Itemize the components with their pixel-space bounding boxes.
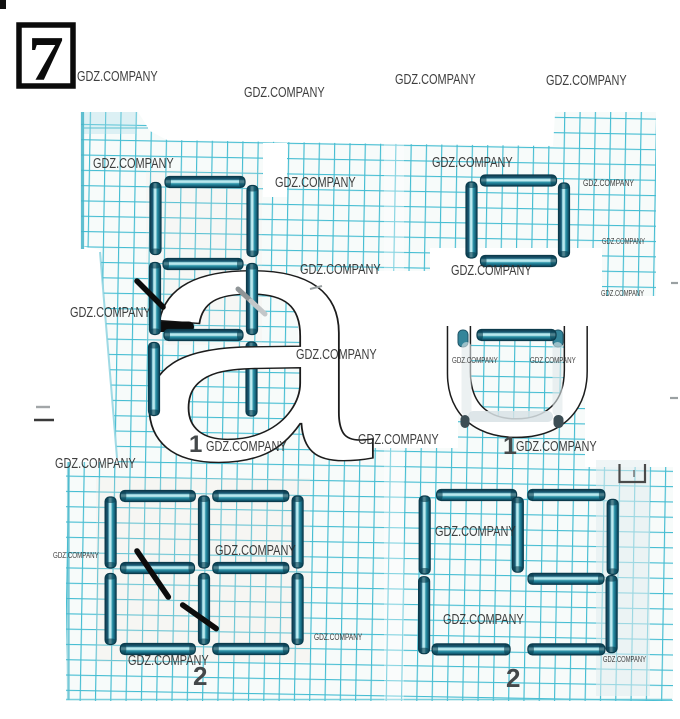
svg-text:GDZ.COMPANY: GDZ.COMPANY (296, 345, 377, 362)
svg-text:GDZ.COMPANY: GDZ.COMPANY (432, 153, 513, 170)
svg-text:GDZ.COMPANY: GDZ.COMPANY (602, 238, 645, 246)
svg-text:GDZ.COMPANY: GDZ.COMPANY (452, 355, 498, 365)
svg-text:GDZ.COMPANY: GDZ.COMPANY (206, 437, 287, 454)
svg-text:GDZ.COMPANY: GDZ.COMPANY (70, 303, 151, 320)
svg-text:GDZ.COMPANY: GDZ.COMPANY (443, 610, 524, 627)
svg-text:1: 1 (189, 431, 202, 458)
svg-text:GDZ.COMPANY: GDZ.COMPANY (546, 71, 627, 88)
svg-text:GDZ.COMPANY: GDZ.COMPANY (358, 430, 439, 447)
svg-text:GDZ.COMPANY: GDZ.COMPANY (128, 651, 209, 668)
svg-text:GDZ.COMPANY: GDZ.COMPANY (53, 550, 99, 560)
svg-text:GDZ.COMPANY: GDZ.COMPANY (93, 154, 174, 171)
svg-text:GDZ.COMPANY: GDZ.COMPANY (77, 67, 158, 84)
svg-text:GDZ.COMPANY: GDZ.COMPANY (451, 261, 532, 278)
svg-text:GDZ.COMPANY: GDZ.COMPANY (601, 290, 644, 298)
svg-text:GDZ.COMPANY: GDZ.COMPANY (300, 260, 381, 277)
svg-text:2: 2 (506, 663, 520, 693)
svg-text:1: 1 (503, 432, 517, 460)
svg-text:GDZ.COMPANY: GDZ.COMPANY (530, 355, 576, 365)
svg-text:GDZ.COMPANY: GDZ.COMPANY (215, 541, 296, 558)
svg-text:7: 7 (28, 23, 64, 95)
svg-text:GDZ.COMPANY: GDZ.COMPANY (583, 177, 634, 188)
svg-text:GDZ.COMPANY: GDZ.COMPANY (244, 83, 325, 100)
svg-text:GDZ.COMPANY: GDZ.COMPANY (603, 656, 646, 664)
svg-text:GDZ.COMPANY: GDZ.COMPANY (516, 437, 597, 454)
svg-text:GDZ.COMPANY: GDZ.COMPANY (275, 173, 356, 190)
svg-text:GDZ.COMPANY: GDZ.COMPANY (314, 632, 363, 642)
svg-text:GDZ.COMPANY: GDZ.COMPANY (435, 522, 516, 539)
svg-text:GDZ.COMPANY: GDZ.COMPANY (55, 454, 136, 471)
svg-text:GDZ.COMPANY: GDZ.COMPANY (395, 70, 476, 87)
